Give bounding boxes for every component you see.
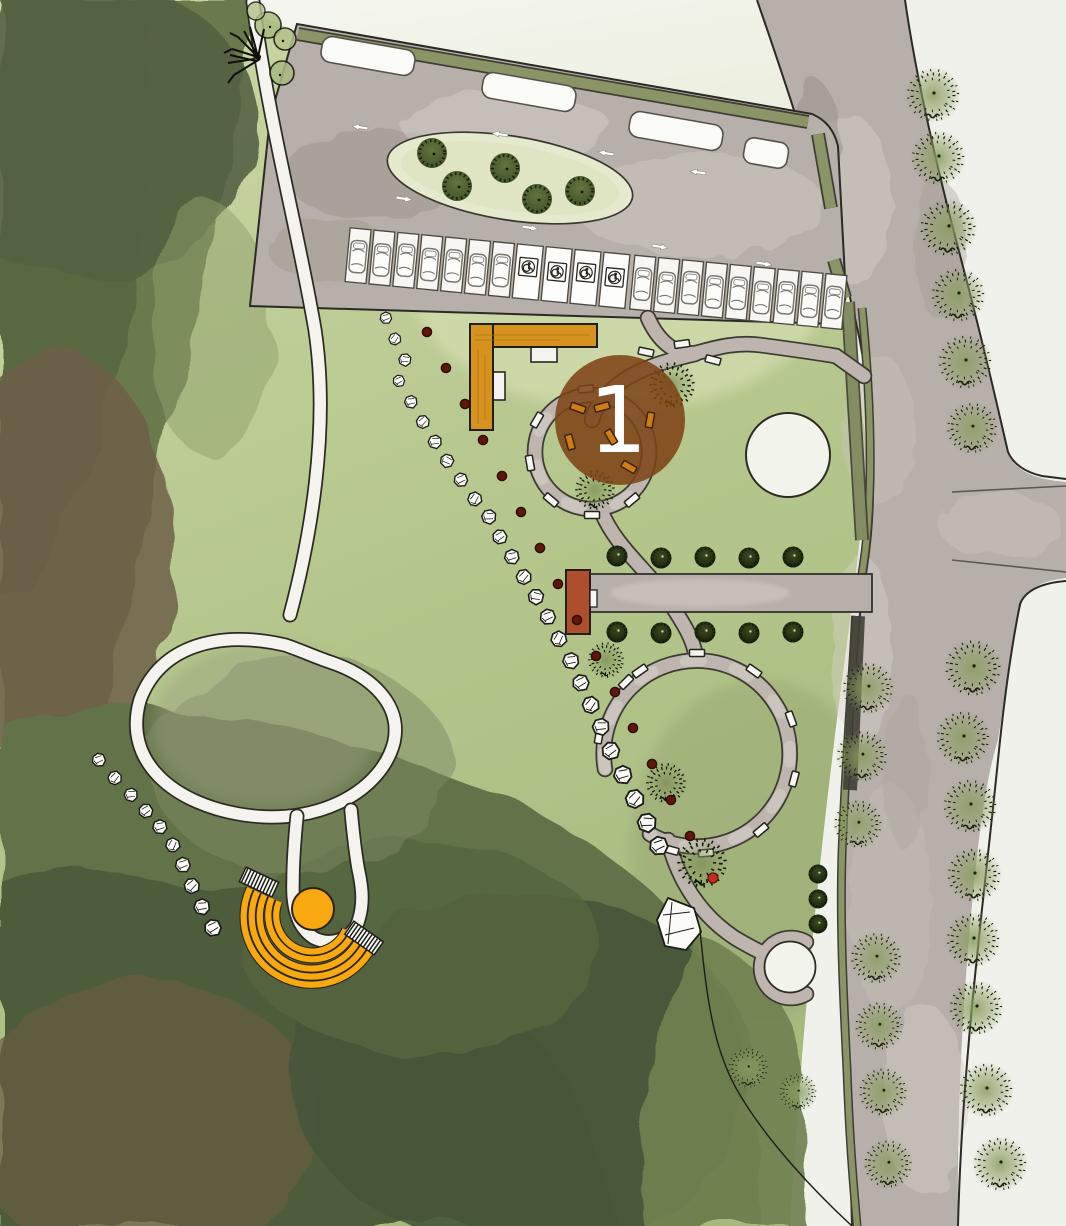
car-icon xyxy=(492,254,511,287)
car-icon xyxy=(681,271,700,304)
car-icon xyxy=(800,285,819,318)
car-icon xyxy=(396,244,415,277)
tree-icon xyxy=(695,547,716,568)
car-icon xyxy=(657,272,676,305)
car-icon xyxy=(420,248,439,281)
accessible-parking-icon xyxy=(605,268,625,288)
red-dot xyxy=(460,399,469,408)
red-dot xyxy=(647,759,656,768)
tree-icon xyxy=(809,890,828,909)
car-icon xyxy=(824,286,843,319)
red-dot xyxy=(516,507,525,516)
marker-1-label: 1 xyxy=(589,367,648,474)
red-dot xyxy=(497,471,506,480)
red-dot xyxy=(441,363,450,372)
boulder-icon xyxy=(493,530,507,544)
red-dot xyxy=(591,651,600,660)
turnaround-circle xyxy=(765,942,816,993)
tree-icon xyxy=(607,546,628,567)
tree-icon xyxy=(607,622,628,643)
tree-icon xyxy=(783,622,804,643)
car-icon xyxy=(633,267,652,300)
accessible-parking-icon xyxy=(576,263,596,283)
red-dot xyxy=(535,543,544,552)
tree-icon xyxy=(442,171,472,201)
car-icon xyxy=(372,243,391,276)
tree-icon xyxy=(695,622,716,643)
red-dot xyxy=(553,579,562,588)
tree-icon xyxy=(809,915,828,934)
tree-icon xyxy=(490,153,520,183)
site-plan-map: 1 xyxy=(0,0,1066,1226)
tree-icon xyxy=(783,547,804,568)
red-dot xyxy=(685,831,694,840)
tree-icon xyxy=(651,623,672,644)
bench-icon xyxy=(525,455,534,471)
tree-icon xyxy=(809,865,828,884)
tree-icon xyxy=(739,623,760,644)
accessible-parking-icon xyxy=(547,262,567,282)
red-dot xyxy=(666,795,675,804)
stage-circle xyxy=(292,888,334,930)
red-dot xyxy=(610,687,619,696)
bench-icon xyxy=(674,339,690,348)
forest-edge-light xyxy=(148,205,272,455)
plaza-circle xyxy=(746,413,830,497)
boulder-icon xyxy=(139,804,152,817)
red-dot xyxy=(628,723,637,732)
walkway-texture xyxy=(610,579,790,607)
bench-icon xyxy=(690,650,705,657)
site-plan-page: 1 xyxy=(0,0,1066,1226)
bench-icon xyxy=(590,590,597,607)
tree-icon xyxy=(565,176,595,206)
tree-icon xyxy=(417,138,447,168)
marker-1[interactable]: 1 xyxy=(555,355,685,485)
boulder-icon xyxy=(603,743,620,760)
red-dot xyxy=(572,615,581,624)
bench-icon xyxy=(645,412,654,428)
tree-icon xyxy=(522,184,552,214)
red-dot-bright xyxy=(708,873,718,883)
car-icon xyxy=(468,253,487,286)
red-dot xyxy=(422,327,431,336)
bench-icon xyxy=(585,512,600,519)
car-icon xyxy=(729,277,748,310)
car-icon xyxy=(752,281,771,314)
tree-icon xyxy=(651,548,672,569)
red-dot xyxy=(478,435,487,444)
car-icon xyxy=(348,240,367,273)
car-icon xyxy=(444,249,463,282)
car-icon xyxy=(776,281,795,314)
tree-icon xyxy=(739,548,760,569)
accessible-parking-icon xyxy=(518,257,538,277)
car-icon xyxy=(705,275,724,308)
